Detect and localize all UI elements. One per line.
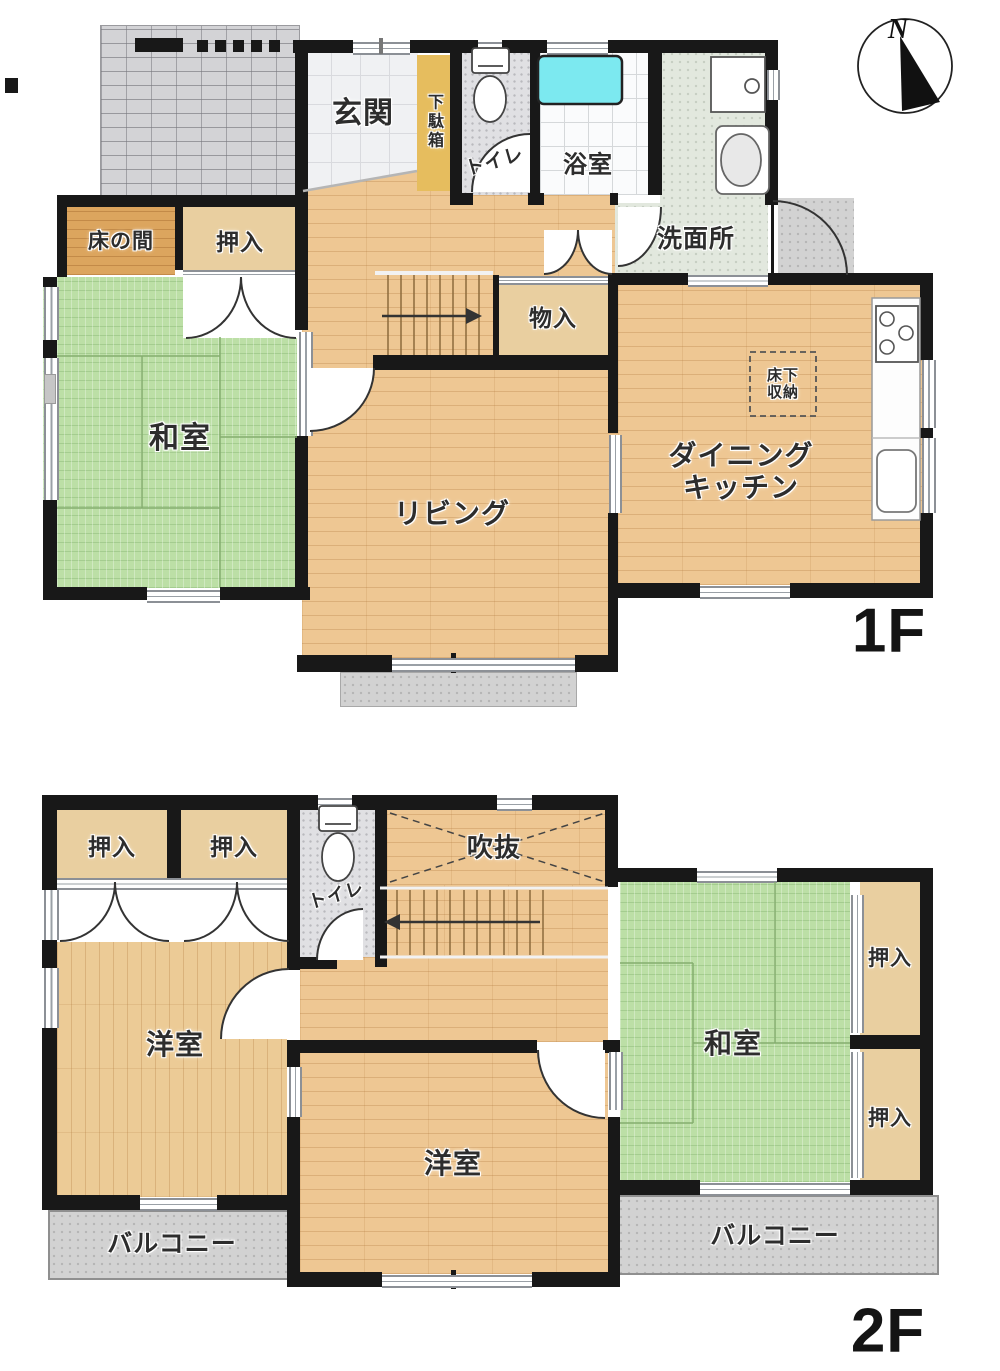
wall: [43, 340, 57, 358]
western-room-left-label: 洋室: [146, 1023, 204, 1063]
underfloor-storage-label: 床下 収納: [767, 367, 799, 402]
shoe-cabinet-label: 下駄箱: [421, 94, 445, 151]
wall: [373, 355, 608, 370]
dining-kitchen-line2: キッチン: [683, 472, 799, 503]
closet-2f-label: 押入: [88, 828, 136, 862]
wall: [610, 1180, 700, 1195]
wall: [462, 40, 478, 53]
wall: [42, 940, 57, 968]
gate-post: [5, 78, 18, 93]
gate-block: [197, 40, 208, 52]
wall: [777, 868, 933, 882]
wall: [528, 193, 544, 205]
wall: [575, 655, 618, 672]
closet-right-sliding: [851, 895, 864, 1033]
shutter-mark: [44, 374, 56, 404]
living-window: [392, 658, 575, 672]
wall: [608, 40, 765, 53]
wall: [217, 1195, 300, 1210]
wall: [287, 1040, 537, 1053]
door-tick: [379, 38, 383, 54]
wall: [608, 1117, 620, 1273]
wall: [920, 882, 933, 1185]
washroom-dk-sliding-door: [688, 275, 768, 287]
wall: [920, 513, 933, 583]
dining-kitchen-line1: ダイニング: [668, 440, 813, 471]
japanese-room-1f-label: 和室: [149, 413, 211, 457]
wall: [43, 500, 57, 590]
japanese-room-window: [44, 287, 59, 340]
wall: [175, 207, 183, 270]
balcony-left-label: バルコニー: [107, 1224, 237, 1260]
storage-label: 物入: [529, 299, 577, 333]
tokonoma-label: 床の間: [88, 225, 154, 255]
toilet-window: [478, 42, 502, 55]
gate-block: [215, 40, 226, 52]
japanese-room-2f-entry-sliding: [609, 1052, 623, 1110]
western-room-left-window: [44, 890, 59, 940]
wall: [42, 795, 57, 890]
closet-2f-right-label: 押入: [868, 1102, 912, 1132]
balcony-door-right: [700, 1183, 850, 1196]
closet-2f-right-label: 押入: [868, 942, 912, 972]
wall: [920, 428, 933, 438]
toilet-2f-window: [318, 798, 352, 811]
dining-kitchen-floor: [618, 285, 933, 585]
closet-right-sliding: [851, 1052, 864, 1178]
wall: [618, 273, 688, 285]
wall: [167, 810, 181, 878]
void-window: [497, 798, 532, 811]
wall: [610, 868, 697, 882]
gate-block: [269, 40, 280, 52]
underfloor-line2: 収納: [767, 384, 799, 401]
wall: [618, 583, 700, 598]
wall: [57, 195, 67, 277]
wall: [300, 1272, 382, 1287]
wall: [450, 193, 473, 205]
balcony-door-center: [382, 1275, 532, 1288]
floor2-label: 2F: [851, 1296, 925, 1367]
wall: [920, 285, 933, 360]
wall: [295, 40, 308, 330]
wall: [42, 1195, 140, 1210]
wall: [502, 40, 547, 53]
floor-plan: N: [0, 0, 1000, 1371]
wall: [530, 40, 540, 195]
dk-window: [922, 360, 936, 428]
wall: [608, 273, 618, 433]
dk-window: [922, 438, 936, 513]
western-room-left-window: [44, 968, 59, 1028]
wall: [352, 795, 497, 810]
wall: [57, 195, 300, 207]
gate-bar: [135, 38, 183, 52]
floor1-label: 1F: [852, 596, 926, 667]
wall: [610, 193, 618, 205]
living-dk-sliding-door: [609, 435, 622, 513]
closet-2f-label: 押入: [210, 828, 258, 862]
wall: [850, 1180, 933, 1195]
hall-2f-floor: [300, 957, 608, 1042]
japanese-room-2f-window: [697, 871, 777, 883]
compass: N: [858, 14, 952, 113]
wall: [287, 1052, 300, 1067]
wall: [648, 40, 662, 195]
bathroom-label: 浴室: [563, 145, 613, 180]
wall: [42, 1028, 57, 1208]
void-label: 吹抜: [467, 828, 521, 865]
storage-sliding-door: [499, 276, 608, 285]
japanese-room-2f-label: 和室: [704, 1022, 762, 1062]
living-label: リビング: [394, 492, 510, 532]
wall: [765, 40, 778, 205]
wall: [42, 795, 318, 810]
dk-south-window: [700, 586, 790, 599]
japanese-room-south-window: [147, 590, 220, 603]
wall: [43, 587, 147, 600]
wall: [493, 275, 499, 355]
entrance-label: 玄関: [332, 88, 394, 132]
washroom-window: [767, 70, 780, 100]
wall: [295, 436, 308, 600]
gate-block: [233, 40, 244, 52]
western-room-center-label: 洋室: [424, 1142, 482, 1182]
washroom-label: 洗面所: [657, 219, 735, 255]
wall: [450, 40, 462, 205]
wall: [43, 277, 57, 287]
balcony-right-label: バルコニー: [710, 1216, 840, 1252]
compass-north-label: N: [887, 14, 910, 45]
wall: [608, 513, 618, 670]
gate-block: [251, 40, 262, 52]
stairs-2f-floor: [380, 885, 608, 957]
wall: [532, 1272, 620, 1287]
closet-1f-label: 押入: [216, 223, 264, 257]
balcony-door-left: [140, 1198, 217, 1211]
wall: [375, 795, 387, 967]
dining-kitchen-label: ダイニング キッチン: [668, 440, 813, 504]
wall: [297, 655, 392, 672]
room-divider-sliding: [289, 1067, 302, 1117]
bathroom-window: [547, 42, 608, 55]
wall: [850, 1035, 933, 1049]
terrace-step: [340, 672, 577, 707]
wall: [220, 587, 310, 600]
underfloor-line1: 床下: [767, 367, 799, 384]
